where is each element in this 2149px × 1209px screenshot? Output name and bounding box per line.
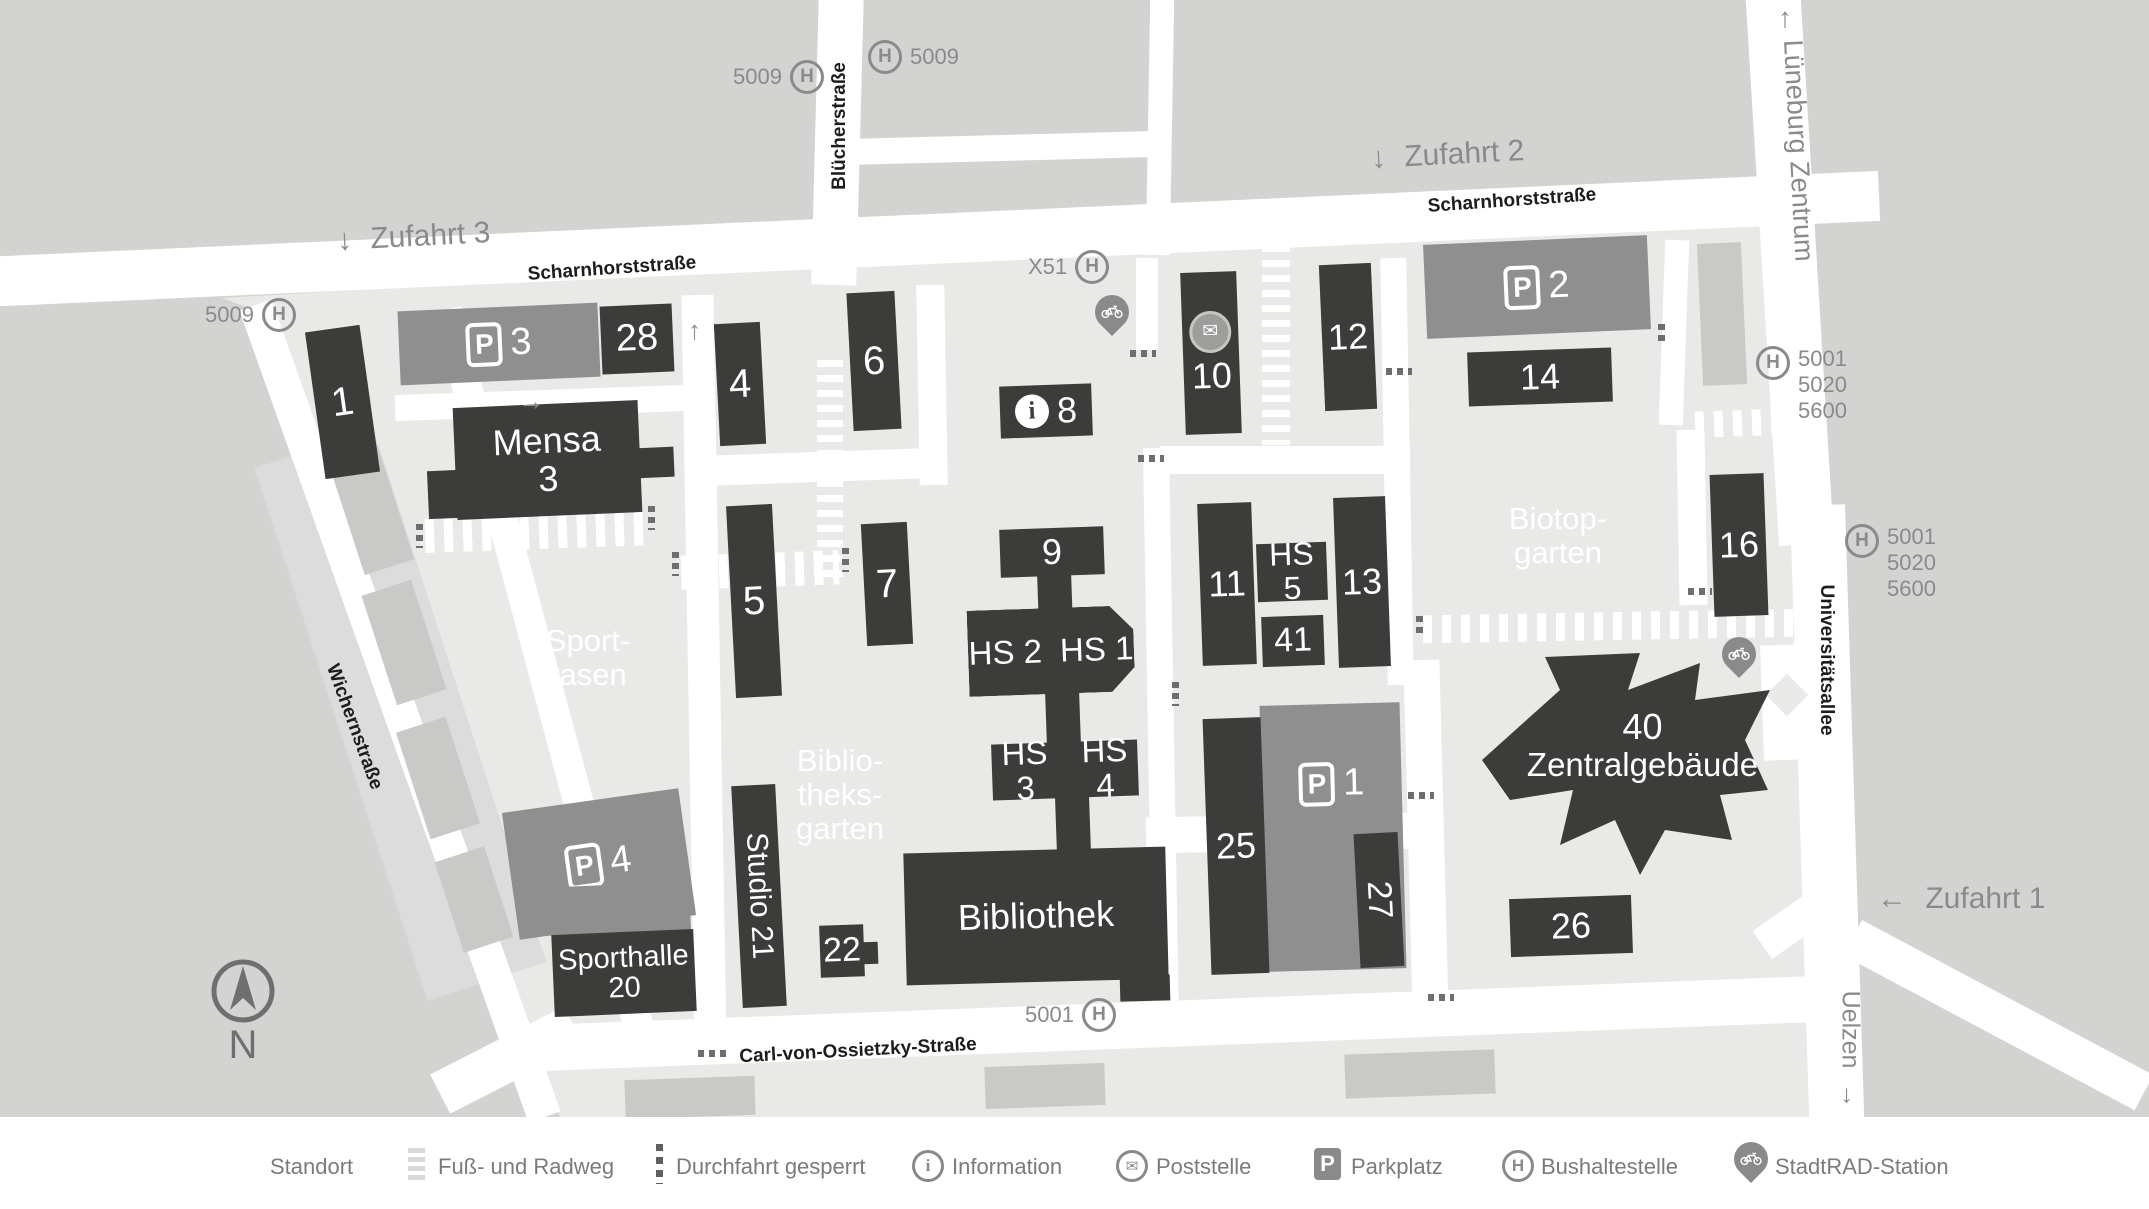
building-unlabeled <box>624 1076 755 1120</box>
direction-uelzen: Uelzen → <box>1836 990 1865 1110</box>
parking-icon: P <box>465 322 503 368</box>
building-label: Sporthalle <box>557 940 689 976</box>
information-icon: i <box>912 1150 944 1182</box>
legend-fussradweg: Fuß- und Radweg <box>438 1154 614 1180</box>
blocked-dots <box>1688 588 1712 595</box>
parking-number: 4 <box>608 840 634 882</box>
area-bibliotheksgarten: Biblio- theks- garten <box>760 744 920 846</box>
legend-stadtrad: StadtRAD-Station <box>1775 1154 1949 1180</box>
bus-stop-x51: X51 H <box>1028 250 1109 284</box>
building-label: Zentralgebäude <box>1520 747 1765 783</box>
building-16: 16 <box>1710 473 1769 617</box>
building-hs1-hs2: HS 2 HS 1 <box>967 605 1136 697</box>
area-label: theks- <box>760 778 920 812</box>
blocked-dots <box>1130 350 1156 357</box>
legend-information: Information <box>952 1154 1062 1180</box>
blocked-dots <box>672 552 679 576</box>
blocked-dots <box>1386 368 1412 375</box>
building-label: 11 <box>1208 564 1247 603</box>
road-h3 <box>1160 446 1410 474</box>
bus-stop-icon: H <box>868 40 902 74</box>
building-25: 25 <box>1203 717 1270 975</box>
parking-number: 3 <box>510 323 533 364</box>
crosswalk-10-12 <box>1262 245 1290 445</box>
building-hs3-hs4: HS 3 HS 4 <box>991 739 1139 800</box>
bus-stop-icon: H <box>262 298 296 332</box>
building-label: 22 <box>822 933 861 970</box>
area-label: garten <box>760 812 920 846</box>
building-mensa: Mensa 3 <box>453 400 643 520</box>
building-label: 12 <box>1327 317 1369 357</box>
bus-stop-5001-carl: 5001 H <box>1025 998 1116 1032</box>
direction-lueneburg-arrow: ↑ <box>1778 2 1792 34</box>
parking-icon: P <box>1503 265 1541 311</box>
building-label: HS 3 <box>991 736 1059 808</box>
road-stub-x51 <box>1136 258 1158 350</box>
area-label: Sport- <box>508 624 668 658</box>
bus-lines: 5600 <box>1887 576 1936 602</box>
down-arrow-icon: ↓ <box>1370 141 1387 175</box>
blocked-dots <box>698 1050 726 1057</box>
parking-number: 2 <box>1548 266 1571 307</box>
compass-icon <box>210 958 276 1024</box>
building-label: 4 <box>728 362 752 405</box>
building-sporthalle: Sporthalle 20 <box>551 929 696 1017</box>
building-label: 9 <box>1041 533 1062 571</box>
zufahrt-2: ↓ Zufahrt 2 <box>1370 134 1525 176</box>
bus-lines: 5009 <box>910 44 959 70</box>
building-label: 27 <box>1360 880 1398 920</box>
building-label: 3 <box>537 460 559 499</box>
blocked-dots <box>1138 455 1164 462</box>
building-unlabeled <box>1344 1049 1495 1098</box>
building-13: 13 <box>1333 496 1391 668</box>
building-14: 14 <box>1467 348 1613 407</box>
building-label: 41 <box>1273 623 1312 660</box>
poststelle-icon: ✉ <box>1189 310 1232 353</box>
bus-stop-icon: H <box>1845 524 1879 558</box>
uelzen-label: Uelzen <box>1837 991 1865 1069</box>
building-26: 26 <box>1509 895 1633 957</box>
building-6: 6 <box>846 291 901 431</box>
bus-lines: 5009 <box>205 302 254 328</box>
building-label: Studio 21 <box>740 832 778 960</box>
building-label: 25 <box>1215 826 1256 865</box>
building-label: 13 <box>1341 562 1382 601</box>
blocked-dots <box>1408 792 1434 799</box>
building-22: 22 <box>819 924 865 978</box>
building-label: 10 <box>1191 356 1232 395</box>
zufahrt-label: Zufahrt 1 <box>1925 882 2045 915</box>
building-label: 8 <box>1056 391 1077 429</box>
building-zentral-label: 40 Zentralgebäude <box>1520 707 1765 783</box>
building-8: i 8 <box>999 383 1093 438</box>
building-label: Mensa <box>492 420 602 462</box>
compass: N <box>208 958 278 1068</box>
building-unlabeled <box>984 1063 1105 1109</box>
bus-stop-icon: H <box>790 60 824 94</box>
bus-stop-icon: H <box>1075 250 1109 284</box>
blocked-dots <box>1658 324 1665 346</box>
bus-lines: X51 <box>1028 254 1067 280</box>
legend-durchfahrt: Durchfahrt gesperrt <box>676 1154 866 1180</box>
bus-lines: 5020 <box>1798 372 1847 398</box>
blocked-icon <box>656 1144 663 1184</box>
crosswalk-4-6 <box>817 360 843 585</box>
building-27: 27 <box>1354 832 1405 968</box>
bus-lines: 5001 <box>1887 524 1936 550</box>
building-label: 28 <box>615 318 659 360</box>
parking-p3: P 3 <box>397 303 600 386</box>
building-28: 28 <box>600 303 675 374</box>
building-label: 14 <box>1519 357 1560 396</box>
bus-stop-icon: H <box>1082 998 1116 1032</box>
building-7: 7 <box>861 522 913 646</box>
compass-n-label: N <box>208 1023 278 1068</box>
legend-standort: Standort <box>270 1154 353 1180</box>
bus-stop-5009-bluecher-west: 5009 H <box>733 60 824 94</box>
road-uelzen-diagonal <box>1843 920 2149 1110</box>
building-label: Bibliothek <box>957 895 1114 937</box>
parkplatz-icon: P <box>1314 1148 1341 1180</box>
bus-lines: 5020 <box>1887 550 1936 576</box>
street-bluecherstrasse: Blücherstraße <box>829 56 851 196</box>
building-bibliothek-step <box>1120 974 1171 1001</box>
bus-stop-5009-west: 5009 H <box>205 298 296 332</box>
building-hs5: HS 5 <box>1256 542 1328 602</box>
parking-icon: P <box>1298 762 1335 807</box>
building-label: 20 <box>608 972 642 1004</box>
building-label: HS 4 <box>1071 733 1139 805</box>
oneway-right-arrow-icon: → <box>518 386 544 417</box>
area-biotopgarten: Biotop- garten <box>1478 502 1638 570</box>
building-label: HS 5 <box>1256 537 1328 607</box>
information-icon: i <box>1014 394 1049 429</box>
bus-stop-5009-bluecher-east: H 5009 <box>868 40 959 74</box>
bus-stop-east-mid: H 5001 5020 5600 <box>1845 524 1936 602</box>
street-universitaetsallee: Universitätsallee <box>1815 570 1837 750</box>
oneway-up-arrow-icon: ↑ <box>688 315 701 346</box>
bus-lines: 5600 <box>1798 398 1847 424</box>
blocked-dots <box>416 524 423 548</box>
zufahrt-1: ← Zufahrt 1 <box>1877 882 2045 916</box>
road-ne-vertical2 <box>1676 430 1707 605</box>
hs-spine-3 <box>1055 794 1091 855</box>
area-label: Biblio- <box>760 744 920 778</box>
blocked-dots <box>1416 616 1423 638</box>
building-label: 26 <box>1550 906 1591 945</box>
legend-bushaltestelle: Bushaltestelle <box>1541 1154 1678 1180</box>
down-arrow-icon: ↓ <box>336 223 353 257</box>
building-label: HS 2 <box>968 634 1043 671</box>
campus-map: P 3 P 2 P 4 P 1 1 28 4 6 Mensa 3 5 7 9 H… <box>0 0 2149 1209</box>
building-bibliothek: Bibliothek <box>903 847 1168 986</box>
crosswalk-studio <box>697 973 725 1048</box>
legend-poststelle: Poststelle <box>1156 1154 1251 1180</box>
building-label: 1 <box>329 380 357 425</box>
zufahrt-label: Zufahrt 2 <box>1404 134 1526 173</box>
building-label: 6 <box>862 339 886 382</box>
blocked-dots <box>648 506 655 530</box>
building-10: ✉ 10 <box>1180 271 1242 435</box>
area-label: garten <box>1478 536 1638 570</box>
building-sporthalle-gray <box>527 881 691 936</box>
poststelle-icon: ✉ <box>1116 1150 1148 1182</box>
blocked-dots <box>1172 682 1179 706</box>
building-41: 41 <box>1261 615 1325 667</box>
area-label: rasen <box>508 658 668 692</box>
bus-lines: 5001 <box>1798 346 1847 372</box>
road-mid-vertical <box>916 285 947 485</box>
bus-lines: 5009 <box>733 64 782 90</box>
area-sportrasen: Sport- rasen <box>508 624 668 692</box>
blocked-dots <box>842 548 849 572</box>
legend-parkplatz: Parkplatz <box>1351 1154 1443 1180</box>
building-label: 7 <box>875 562 899 605</box>
building-12: 12 <box>1319 263 1377 411</box>
bus-lines: 5001 <box>1025 1002 1074 1028</box>
blocked-dots <box>1428 994 1454 1001</box>
parking-number: 1 <box>1343 763 1365 803</box>
bus-stop-east-upper: H 5001 5020 5600 <box>1756 346 1847 424</box>
building-label: 5 <box>742 579 766 622</box>
building-label: 40 <box>1520 707 1765 747</box>
building-unlabeled <box>1697 242 1747 386</box>
building-label: HS 1 <box>1059 631 1134 668</box>
parking-icon: P <box>564 842 606 891</box>
building-4: 4 <box>714 322 766 446</box>
parking-p2: P 2 <box>1423 235 1651 339</box>
road-north-vertical <box>1146 0 1175 255</box>
building-label: 16 <box>1718 525 1759 564</box>
road-top-connector <box>851 131 1152 165</box>
left-arrow-icon: ← <box>1877 882 1907 915</box>
down-arrow-icon: → <box>1837 1083 1865 1108</box>
area-label: Biotop- <box>1478 502 1638 536</box>
bus-stop-icon: H <box>1756 346 1790 380</box>
building-22-nub <box>862 942 879 965</box>
zufahrt-label: Zufahrt 3 <box>370 216 492 255</box>
bushaltestelle-icon: H <box>1502 1150 1534 1182</box>
building-11: 11 <box>1197 502 1257 666</box>
footpath-icon <box>408 1148 425 1182</box>
